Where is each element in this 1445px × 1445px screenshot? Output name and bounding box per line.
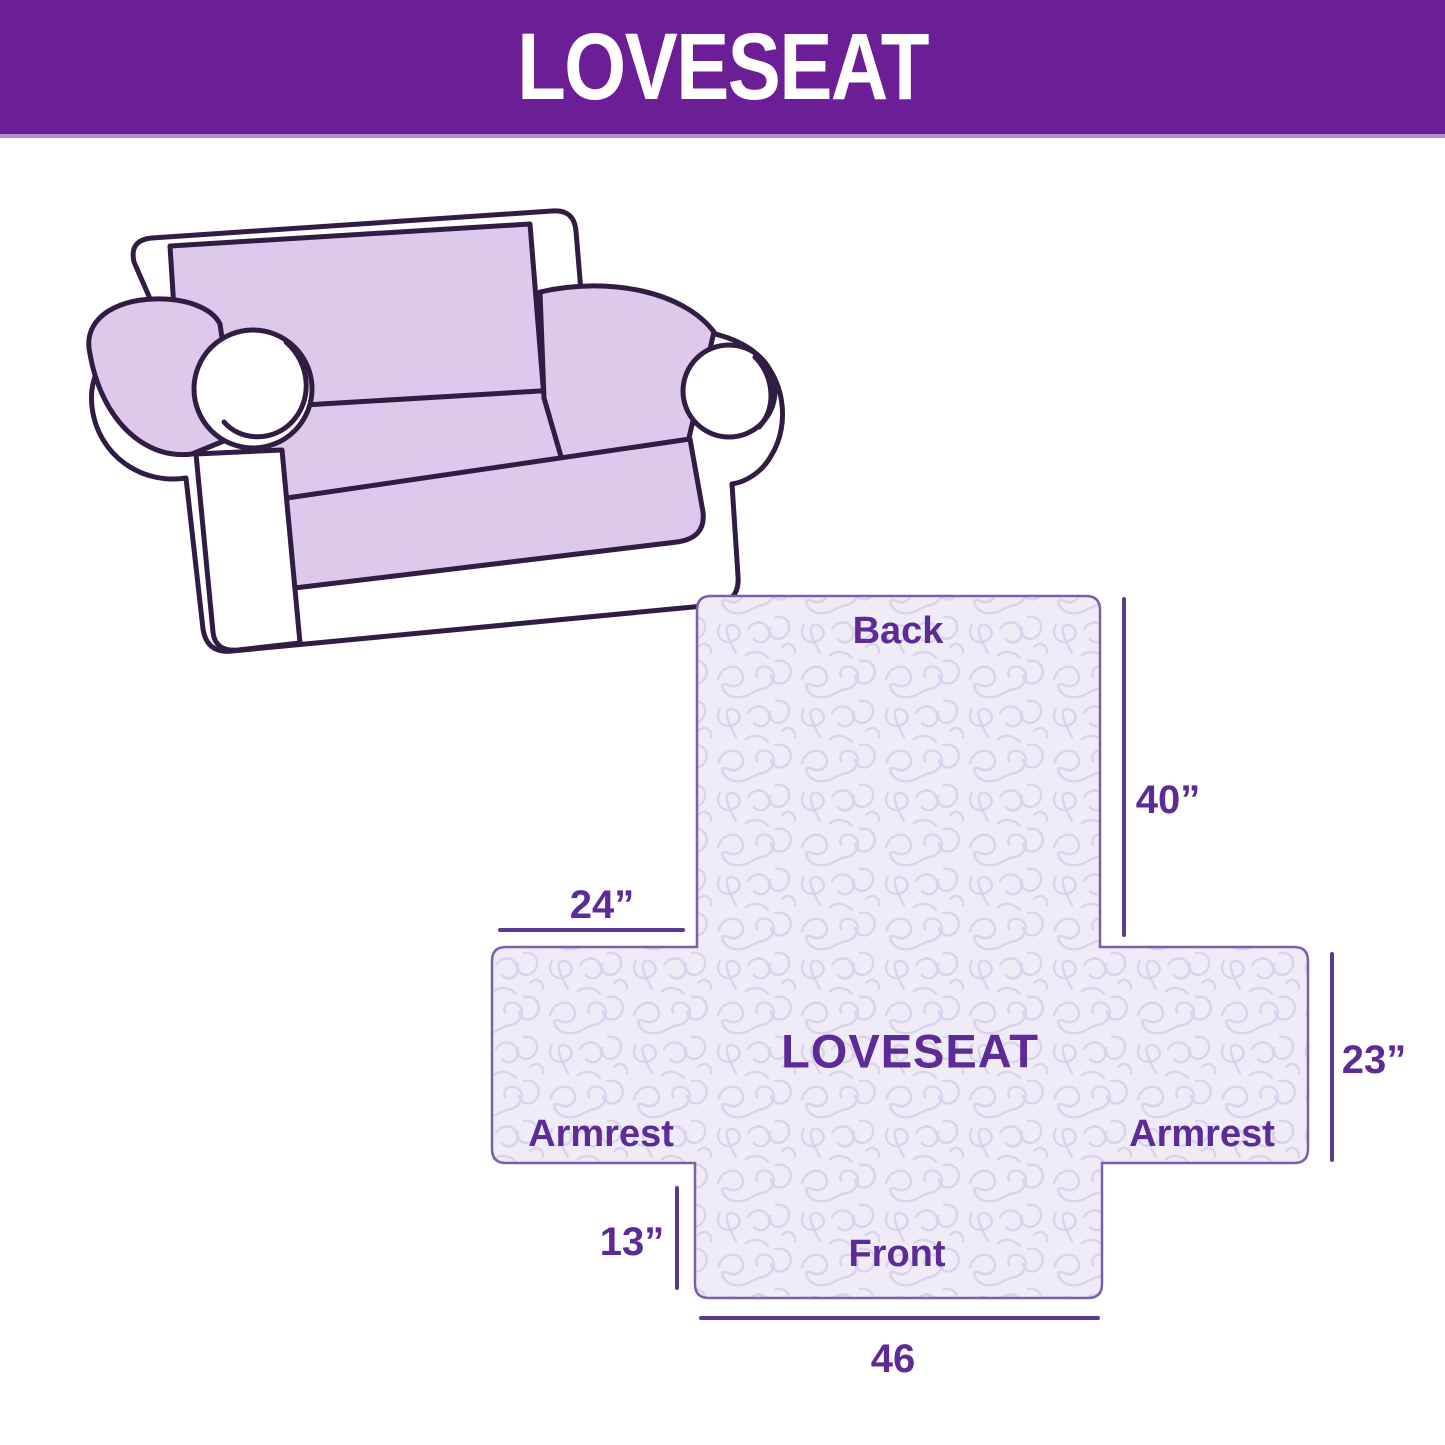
cover-cross-shape bbox=[492, 596, 1308, 1298]
header-band: LOVESEAT bbox=[0, 0, 1445, 138]
label-back: Back bbox=[853, 612, 944, 650]
cover-dimension-diagram: Back LOVESEAT Armrest Armrest Front 40” … bbox=[460, 575, 1445, 1420]
dim-label-front-skirt-height: 13” bbox=[600, 1222, 665, 1262]
loveseat-size-infographic: LOVESEAT bbox=[0, 0, 1445, 1445]
dim-line-front-width bbox=[699, 1316, 1100, 1320]
cover-cross-shape-svg bbox=[460, 575, 1445, 1420]
dim-label-back-height: 40” bbox=[1136, 780, 1201, 820]
dim-line-armrest-side-height bbox=[1330, 952, 1334, 1162]
dim-label-front-width: 46 bbox=[871, 1339, 916, 1379]
dim-line-armrest-top-width bbox=[498, 928, 685, 932]
dim-line-back-height bbox=[1122, 597, 1126, 937]
label-armrest-right: Armrest bbox=[1129, 1115, 1275, 1153]
sofa-left-arm-front bbox=[196, 450, 300, 650]
dim-label-armrest-side-height: 23” bbox=[1342, 1040, 1407, 1080]
dim-label-armrest-top-width: 24” bbox=[570, 885, 635, 925]
label-front: Front bbox=[848, 1235, 945, 1273]
label-center-loveseat: LOVESEAT bbox=[781, 1028, 1039, 1075]
label-armrest-left: Armrest bbox=[528, 1115, 674, 1153]
dim-line-front-skirt-height bbox=[675, 1186, 679, 1290]
page-title: LOVESEAT bbox=[517, 20, 928, 115]
